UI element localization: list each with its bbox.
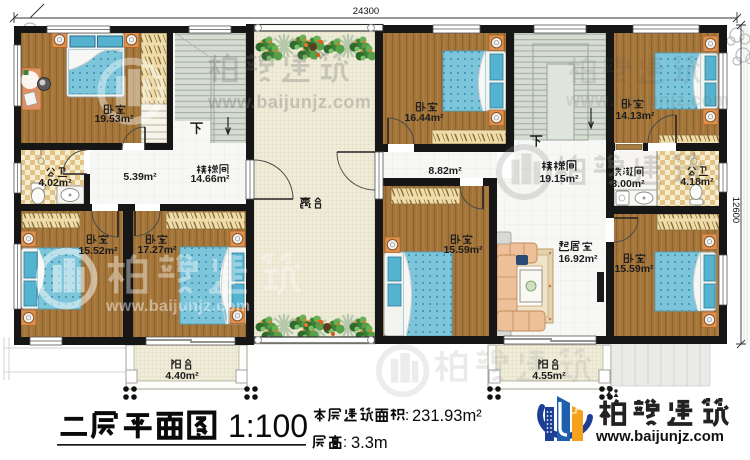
svg-text:4.55m²: 4.55m² <box>532 370 566 382</box>
svg-text:4.18m²: 4.18m² <box>680 176 714 188</box>
svg-text::: : <box>405 407 409 424</box>
svg-text:www.baijunjz.com: www.baijunjz.com <box>207 92 371 112</box>
svg-text:www.baijunjz.com: www.baijunjz.com <box>105 298 251 315</box>
svg-text:16.44m²: 16.44m² <box>404 112 444 124</box>
svg-text:www.baijunjz.com: www.baijunjz.com <box>595 429 724 445</box>
svg-text:3.00m²: 3.00m² <box>611 178 645 190</box>
svg-text:15.52m²: 15.52m² <box>78 245 118 257</box>
svg-text:15.59m²: 15.59m² <box>614 263 654 275</box>
svg-text:www.baijunjz.com: www.baijunjz.com <box>565 90 729 110</box>
svg-text:4.02m²: 4.02m² <box>38 177 72 189</box>
svg-text:5.39m²: 5.39m² <box>123 171 157 183</box>
svg-text:14.13m²: 14.13m² <box>615 110 655 122</box>
svg-text:1:100: 1:100 <box>228 408 308 444</box>
svg-text:19.15m²: 19.15m² <box>539 173 579 185</box>
svg-text:14.66m²: 14.66m² <box>190 173 230 185</box>
svg-text::: : <box>343 434 347 451</box>
svg-text:4.40m²: 4.40m² <box>165 370 199 382</box>
svg-text:19.53m²: 19.53m² <box>94 113 134 125</box>
svg-text:231.93m²: 231.93m² <box>412 407 482 425</box>
svg-text:24300: 24300 <box>353 6 379 17</box>
svg-text:17.27m²: 17.27m² <box>137 244 177 256</box>
svg-text:8.82m²: 8.82m² <box>428 165 462 177</box>
svg-text:3.3m: 3.3m <box>351 434 388 452</box>
svg-text:15.59m²: 15.59m² <box>443 244 483 256</box>
svg-text:16.92m²: 16.92m² <box>558 253 598 265</box>
svg-text:12600: 12600 <box>730 197 741 223</box>
